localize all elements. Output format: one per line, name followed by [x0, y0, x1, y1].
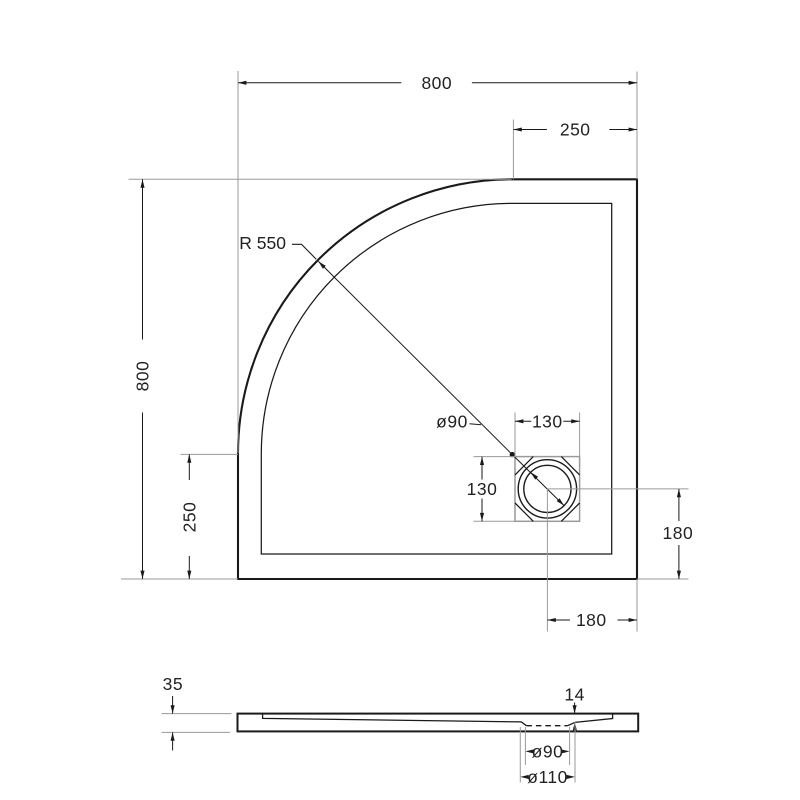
svg-text:14: 14 [564, 684, 584, 704]
svg-text:250: 250 [179, 502, 199, 533]
svg-text:R 550: R 550 [239, 233, 286, 253]
svg-text:800: 800 [133, 361, 153, 392]
svg-text:ø90: ø90 [436, 412, 468, 432]
svg-text:130: 130 [467, 479, 498, 499]
svg-text:180: 180 [576, 610, 607, 630]
svg-text:800: 800 [421, 73, 452, 93]
svg-text:35: 35 [163, 674, 183, 694]
svg-text:250: 250 [560, 120, 591, 140]
svg-text:180: 180 [663, 523, 694, 543]
svg-text:ø110: ø110 [527, 767, 568, 787]
svg-text:130: 130 [532, 411, 563, 431]
svg-text:ø90: ø90 [532, 742, 564, 762]
